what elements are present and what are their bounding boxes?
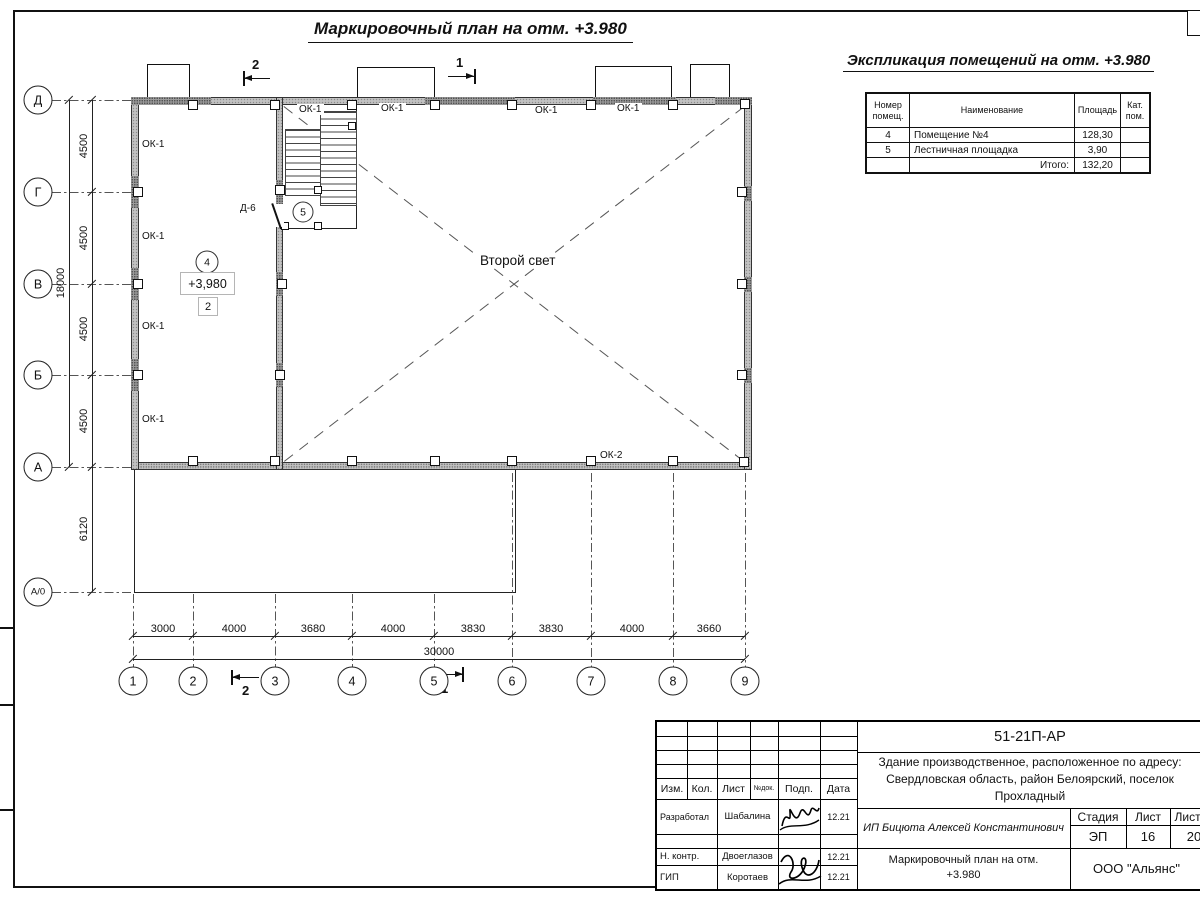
sheet-value: 16 (1126, 825, 1170, 848)
column-marker (188, 456, 198, 466)
wall-pier (131, 97, 211, 105)
axis-circle-7: 7 (577, 667, 606, 696)
dim-label: 6120 (78, 517, 90, 541)
tb-col-kol: Кол. (687, 778, 717, 799)
zone-mark: 2 (198, 297, 218, 316)
explication-title: Экспликация помещений на отм. +3.980 (843, 52, 1154, 72)
title-block: Изм. Кол. Лист №док. Подп. Дата Разработ… (655, 720, 1200, 891)
column-marker (347, 456, 357, 466)
axis-circle-2: 2 (179, 667, 208, 696)
axis-circle-v: В (24, 270, 53, 299)
column-marker (275, 370, 285, 380)
axis-circle-a0: А/0 (24, 578, 53, 607)
dim-total-label: 30000 (424, 646, 455, 658)
column-marker (133, 370, 143, 380)
company-name: ООО "Альянс" (1070, 848, 1200, 889)
dim-label: 3660 (697, 623, 721, 635)
column-marker (275, 185, 285, 195)
window-label: ОК-1 (533, 105, 560, 116)
tb-name: Двоеглазов (717, 848, 778, 865)
void-label: Второй свет (477, 253, 558, 268)
dimension-line (92, 100, 93, 592)
tb-col-data: Дата (820, 778, 857, 799)
door-label: Д-6 (238, 203, 258, 214)
column-marker (586, 456, 596, 466)
room-number-5: 5 (293, 202, 314, 223)
window-label: ОК-1 (140, 321, 167, 332)
dimension-line (133, 636, 745, 637)
axis-circle-g: Г (24, 178, 53, 207)
frame-tick (0, 809, 13, 811)
table-total-row: Итого: 132,20 (866, 158, 1150, 174)
column-marker (739, 457, 749, 467)
axis-line (673, 473, 674, 668)
stage-value: ЭП (1070, 825, 1126, 848)
column-marker (737, 279, 747, 289)
section-mark-label: 2 (252, 57, 259, 72)
signature (775, 844, 823, 889)
column-marker (133, 279, 143, 289)
window-label: ОК-1 (140, 231, 167, 242)
doc-number: 51-21П-АР (857, 722, 1200, 752)
drawing-title: Маркировочный план на отм. +3.980 (857, 853, 1070, 883)
frame-top (13, 10, 1200, 12)
column-marker (586, 100, 596, 110)
frame-left (13, 10, 15, 888)
tb-col-podp: Подп. (778, 778, 820, 799)
axis-circle-d: Д (24, 86, 53, 115)
tb-name: Коротаев (717, 865, 778, 889)
wall-bottom (131, 462, 752, 470)
roof-shaft (690, 64, 730, 100)
sheets-label: Листов (1170, 808, 1200, 825)
room-number-4: 4 (196, 251, 219, 274)
dim-label: 3830 (461, 623, 485, 635)
tb-role: Н. контр. (658, 848, 719, 865)
column-marker (430, 100, 440, 110)
dim-label: 4000 (222, 623, 246, 635)
client-name: ИП Бицюта Алексей Константинович (857, 808, 1070, 848)
section-mark-label: 2 (242, 683, 249, 698)
stair-post (348, 122, 356, 130)
drawing-sheet: Маркировочный план на отм. +3.980 Экспли… (0, 0, 1200, 900)
roof-shaft (147, 64, 190, 100)
explication-table: Номерпомещ. Наименование Площадь Кат.пом… (865, 92, 1151, 174)
elevation-mark: +3,980 (180, 272, 235, 295)
col-header-area: Площадь (1075, 93, 1121, 128)
section-mark-label: 1 (456, 55, 463, 70)
signature (777, 798, 821, 836)
roof-shaft (595, 66, 672, 100)
axis-circle-5: 5 (420, 667, 449, 696)
tb-date: 12.21 (820, 799, 857, 834)
frame-tick (0, 627, 13, 629)
dim-label: 4500 (78, 226, 90, 250)
dim-label: 4500 (78, 409, 90, 433)
section-arrow-icon (232, 674, 240, 680)
dim-label: 3000 (151, 623, 175, 635)
roof-shaft (357, 67, 435, 100)
stage-label: Стадия (1070, 808, 1126, 825)
column-marker (668, 100, 678, 110)
dimension-line (69, 100, 70, 467)
tb-date: 12.21 (820, 848, 857, 865)
axis-circle-a: А (24, 453, 53, 482)
column-marker (740, 99, 750, 109)
window-label: ОК-2 (598, 450, 625, 461)
tb-date: 12.21 (820, 865, 857, 889)
tb-col-list: Лист (717, 778, 750, 799)
column-marker (507, 100, 517, 110)
column-marker (737, 370, 747, 380)
tb-name: Шабалина (717, 799, 778, 834)
window-label: ОК-1 (615, 103, 642, 114)
window-label: ОК-1 (140, 139, 167, 150)
dim-label: 4000 (381, 623, 405, 635)
axis-circle-4: 4 (338, 667, 367, 696)
axis-circle-3: 3 (261, 667, 290, 696)
window-label: ОК-1 (140, 414, 167, 425)
page-title: Маркировочный план на отм. +3.980 (308, 19, 633, 43)
column-marker (277, 279, 287, 289)
axis-circle-1: 1 (119, 667, 148, 696)
section-arrow-icon (244, 75, 252, 81)
annex-outline (134, 470, 516, 593)
axis-circle-b: Б (24, 361, 53, 390)
tb-col-ndok: №док. (750, 778, 778, 799)
axis-line (275, 594, 276, 668)
table-row: 4 Помещение №4 128,30 (866, 128, 1150, 143)
axis-circle-6: 6 (498, 667, 527, 696)
column-marker (507, 456, 517, 466)
stair-post (314, 222, 322, 230)
col-header-name: Наименование (910, 93, 1075, 128)
axis-circle-9: 9 (731, 667, 760, 696)
section-arrow-icon (455, 671, 463, 677)
stair-post (314, 186, 322, 194)
col-header-cat: Кат.пом. (1121, 93, 1151, 128)
tb-role: ГИП (658, 865, 719, 889)
dim-label: 3680 (301, 623, 325, 635)
project-name: Здание производственное, расположенное п… (857, 754, 1200, 805)
tb-role: Разработал (658, 799, 719, 834)
column-marker (737, 187, 747, 197)
table-row: 5 Лестничная площадка 3,90 (866, 143, 1150, 158)
frame-corner-box (1187, 10, 1200, 36)
frame-tick (0, 704, 13, 706)
column-marker (270, 456, 280, 466)
dim-label: 3830 (539, 623, 563, 635)
dim-label: 4500 (78, 134, 90, 158)
tb-col-izm: Изм. (657, 778, 687, 799)
axis-circle-8: 8 (659, 667, 688, 696)
window-label: ОК-1 (379, 103, 406, 114)
col-header-number: Номерпомещ. (866, 93, 910, 128)
axis-line (745, 473, 746, 668)
sheets-value: 20 (1170, 825, 1200, 848)
column-marker (188, 100, 198, 110)
axis-line (512, 473, 513, 668)
axis-line (193, 594, 194, 668)
total-value: 132,20 (1075, 158, 1121, 174)
section-arrow-icon (466, 73, 474, 79)
window-label: ОК-1 (297, 104, 324, 115)
total-label: Итого: (910, 158, 1075, 174)
column-marker (270, 100, 280, 110)
dim-total-label: 18000 (55, 268, 67, 299)
axis-line (352, 594, 353, 668)
dim-label: 4000 (620, 623, 644, 635)
sheet-label: Лист (1126, 808, 1170, 825)
column-marker (430, 456, 440, 466)
section-mark (474, 69, 476, 84)
column-marker (347, 100, 357, 110)
dim-label: 4500 (78, 317, 90, 341)
dimension-line (133, 659, 745, 660)
column-marker (133, 187, 143, 197)
axis-line (591, 473, 592, 668)
column-marker (668, 456, 678, 466)
